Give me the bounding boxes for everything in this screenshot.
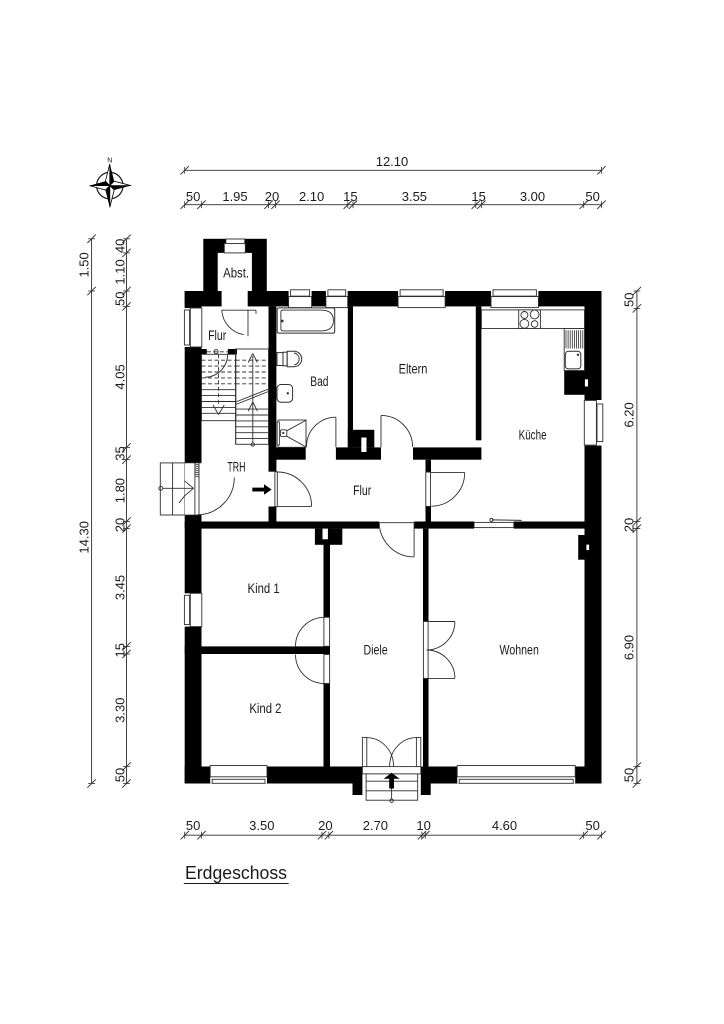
svg-text:2.70: 2.70 [363, 818, 388, 833]
svg-text:1.50: 1.50 [76, 252, 91, 277]
svg-text:15: 15 [343, 189, 357, 204]
svg-text:50: 50 [585, 818, 599, 833]
svg-text:50: 50 [113, 291, 128, 305]
svg-text:20: 20 [621, 518, 636, 532]
svg-text:50: 50 [621, 768, 636, 782]
svg-text:20: 20 [265, 189, 279, 204]
svg-text:Bad: Bad [310, 374, 328, 389]
svg-text:4.60: 4.60 [492, 818, 517, 833]
svg-text:15: 15 [113, 643, 128, 657]
svg-text:12.10: 12.10 [376, 154, 409, 169]
svg-text:1.80: 1.80 [113, 478, 128, 503]
svg-text:1.10: 1.10 [113, 259, 128, 284]
svg-text:15: 15 [471, 189, 485, 204]
svg-text:40: 40 [113, 239, 128, 253]
svg-text:Kind 1: Kind 1 [248, 581, 280, 596]
svg-text:6.20: 6.20 [621, 402, 636, 427]
svg-text:35: 35 [113, 446, 128, 460]
svg-text:6.90: 6.90 [621, 635, 636, 660]
svg-text:3.55: 3.55 [402, 189, 427, 204]
svg-text:Flur: Flur [353, 483, 372, 498]
svg-text:50: 50 [113, 768, 128, 782]
svg-text:Wohnen: Wohnen [500, 643, 539, 658]
svg-text:3.45: 3.45 [113, 575, 128, 600]
svg-text:Küche: Küche [519, 427, 547, 442]
svg-text:10: 10 [416, 818, 430, 833]
svg-text:Kind 2: Kind 2 [249, 701, 281, 716]
svg-text:TRH: TRH [227, 460, 245, 475]
svg-text:14.30: 14.30 [76, 521, 91, 554]
svg-text:3.50: 3.50 [249, 818, 274, 833]
svg-text:3.00: 3.00 [520, 189, 545, 204]
svg-text:20: 20 [318, 818, 332, 833]
svg-text:50: 50 [585, 189, 599, 204]
svg-text:Eltern: Eltern [399, 361, 428, 376]
svg-text:Erdgeschoss: Erdgeschoss [185, 863, 287, 883]
svg-text:50: 50 [186, 818, 200, 833]
svg-text:50: 50 [621, 292, 636, 306]
svg-text:Diele: Diele [364, 643, 388, 658]
svg-text:2.10: 2.10 [299, 189, 324, 204]
svg-text:Abst.: Abst. [223, 265, 249, 280]
svg-text:1.95: 1.95 [222, 189, 247, 204]
svg-text:N: N [107, 158, 112, 165]
svg-text:Flur: Flur [208, 328, 227, 343]
svg-text:3.30: 3.30 [113, 698, 128, 723]
svg-text:50: 50 [186, 189, 200, 204]
svg-text:20: 20 [113, 518, 128, 532]
svg-text:4.05: 4.05 [113, 364, 128, 389]
